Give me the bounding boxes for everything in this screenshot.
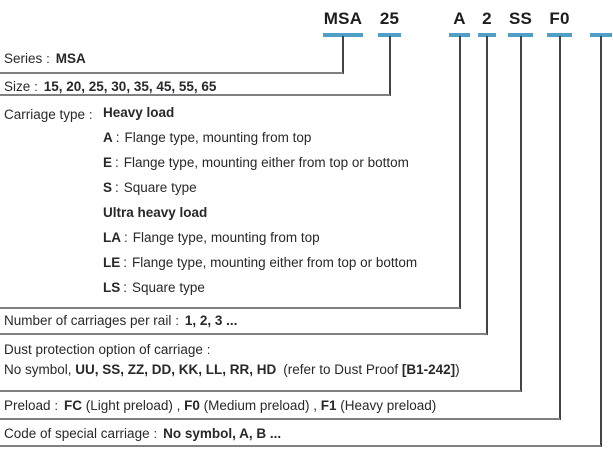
colon: :	[123, 280, 127, 295]
option-desc: Flange type, mounting from top	[133, 230, 320, 245]
carriage-option: A:Flange type, mounting from top	[103, 129, 417, 154]
carriages-per-rail-label: Number of carriages per rail	[4, 313, 171, 328]
dust-note-pre: (refer to Dust Proof	[283, 362, 398, 377]
colon: :	[46, 52, 49, 66]
row-dust-protection-codes: No symbol, UU, SS, ZZ, DD, KK, LL, RR, H…	[4, 361, 460, 378]
size-value: 15, 20, 25, 30, 35, 45, 55, 65	[44, 79, 217, 94]
colon: :	[55, 399, 58, 413]
colon: :	[89, 108, 92, 122]
option-code: E	[103, 155, 112, 170]
rule-preload	[0, 418, 560, 420]
connector-line-carriage-type	[459, 36, 461, 309]
option-desc: Square type	[132, 280, 205, 295]
option-desc: Flange type, mounting either from top or…	[132, 255, 417, 270]
code-label-dust-protection: SS	[508, 8, 533, 30]
rule-special-carriage	[0, 445, 601, 447]
carriage-type-label: Carriage type	[4, 107, 85, 122]
colon: :	[116, 130, 120, 145]
connector-line-size	[389, 36, 391, 96]
colon: :	[154, 427, 157, 441]
connector-line-series	[342, 36, 344, 74]
connector-line-carriages-per-rail	[486, 36, 488, 335]
carriage-group-heading: Ultra heavy load	[103, 204, 417, 229]
option-desc: Flange type, mounting either from top or…	[124, 155, 409, 170]
row-carriage-type-label: Carriage type:	[4, 106, 99, 124]
connector-line-dust-protection	[520, 36, 522, 392]
row-special-carriage: Code of special carriage:No symbol, A, B…	[4, 425, 281, 443]
carriage-option: LS:Square type	[103, 279, 417, 304]
option-desc: Flange type, mounting from top	[125, 130, 312, 145]
row-series: Series:MSA	[4, 50, 86, 68]
carriage-group-heading: Heavy load	[103, 104, 417, 129]
preload-desc: (Heavy preload)	[340, 398, 436, 413]
preload-desc: (Medium preload) ,	[204, 398, 317, 413]
option-code: S	[103, 180, 112, 195]
dust-note-post: )	[455, 362, 460, 377]
colon: :	[124, 230, 128, 245]
carriage-option: S:Square type	[103, 179, 417, 204]
dust-protection-label: Dust protection option of carriage	[4, 342, 203, 357]
colon: :	[34, 80, 37, 94]
code-label-size: 25	[378, 8, 401, 30]
option-code: LA	[103, 230, 121, 245]
code-label-series: MSA	[323, 8, 363, 30]
colon: :	[207, 343, 210, 357]
code-label-preload: F0	[547, 8, 572, 30]
dust-note-ref: [B1-242]	[402, 362, 455, 377]
special-carriage-label: Code of special carriage	[4, 426, 150, 441]
option-code: LE	[103, 255, 120, 270]
rule-carriage-type	[0, 307, 460, 309]
preload-code: FC	[64, 398, 82, 413]
carriage-option: E:Flange type, mounting either from top …	[103, 154, 417, 179]
code-label-carriages-per-rail: 2	[478, 8, 496, 30]
size-label: Size	[4, 79, 30, 94]
row-preload: Preload:FC (Light preload) , F0 (Medium …	[4, 397, 436, 415]
colon: :	[115, 180, 119, 195]
series-value: MSA	[56, 51, 86, 66]
preload-label: Preload	[4, 398, 51, 413]
carriages-per-rail-value: 1, 2, 3 ...	[185, 313, 238, 328]
code-label-carriage-type: A	[449, 8, 470, 30]
row-carriages-per-rail: Number of carriages per rail:1, 2, 3 ...	[4, 312, 237, 330]
model-code-diagram: MSA 25 A 2 SS F0 Series:MSA Size:15, 20,…	[0, 0, 613, 450]
dust-codes-prefix: No symbol,	[4, 362, 72, 377]
rule-dust-protection	[0, 390, 521, 392]
row-dust-protection-label: Dust protection option of carriage:	[4, 341, 216, 359]
carriage-option: LE:Flange type, mounting either from top…	[103, 254, 417, 279]
row-size: Size:15, 20, 25, 30, 35, 45, 55, 65	[4, 78, 216, 96]
series-label: Series	[4, 51, 42, 66]
connector-line-special-carriage	[600, 36, 602, 447]
preload-desc: (Light preload) ,	[86, 398, 181, 413]
colon: :	[115, 155, 119, 170]
special-carriage-value: No symbol, A, B ...	[163, 426, 281, 441]
dust-codes: UU, SS, ZZ, DD, KK, LL, RR, HD	[75, 362, 276, 377]
option-desc: Square type	[124, 180, 197, 195]
connector-line-preload	[559, 36, 561, 420]
colon: :	[123, 255, 127, 270]
preload-code: F1	[321, 398, 337, 413]
option-code: LS	[103, 280, 120, 295]
rule-carriages-per-rail	[0, 333, 487, 335]
colon: :	[175, 314, 178, 328]
code-label-special-carriage	[590, 8, 612, 30]
option-code: A	[103, 130, 113, 145]
preload-code: F0	[184, 398, 200, 413]
carriage-option: LA:Flange type, mounting from top	[103, 229, 417, 254]
rule-series	[0, 72, 343, 74]
carriage-type-options: Heavy load A:Flange type, mounting from …	[103, 104, 417, 304]
